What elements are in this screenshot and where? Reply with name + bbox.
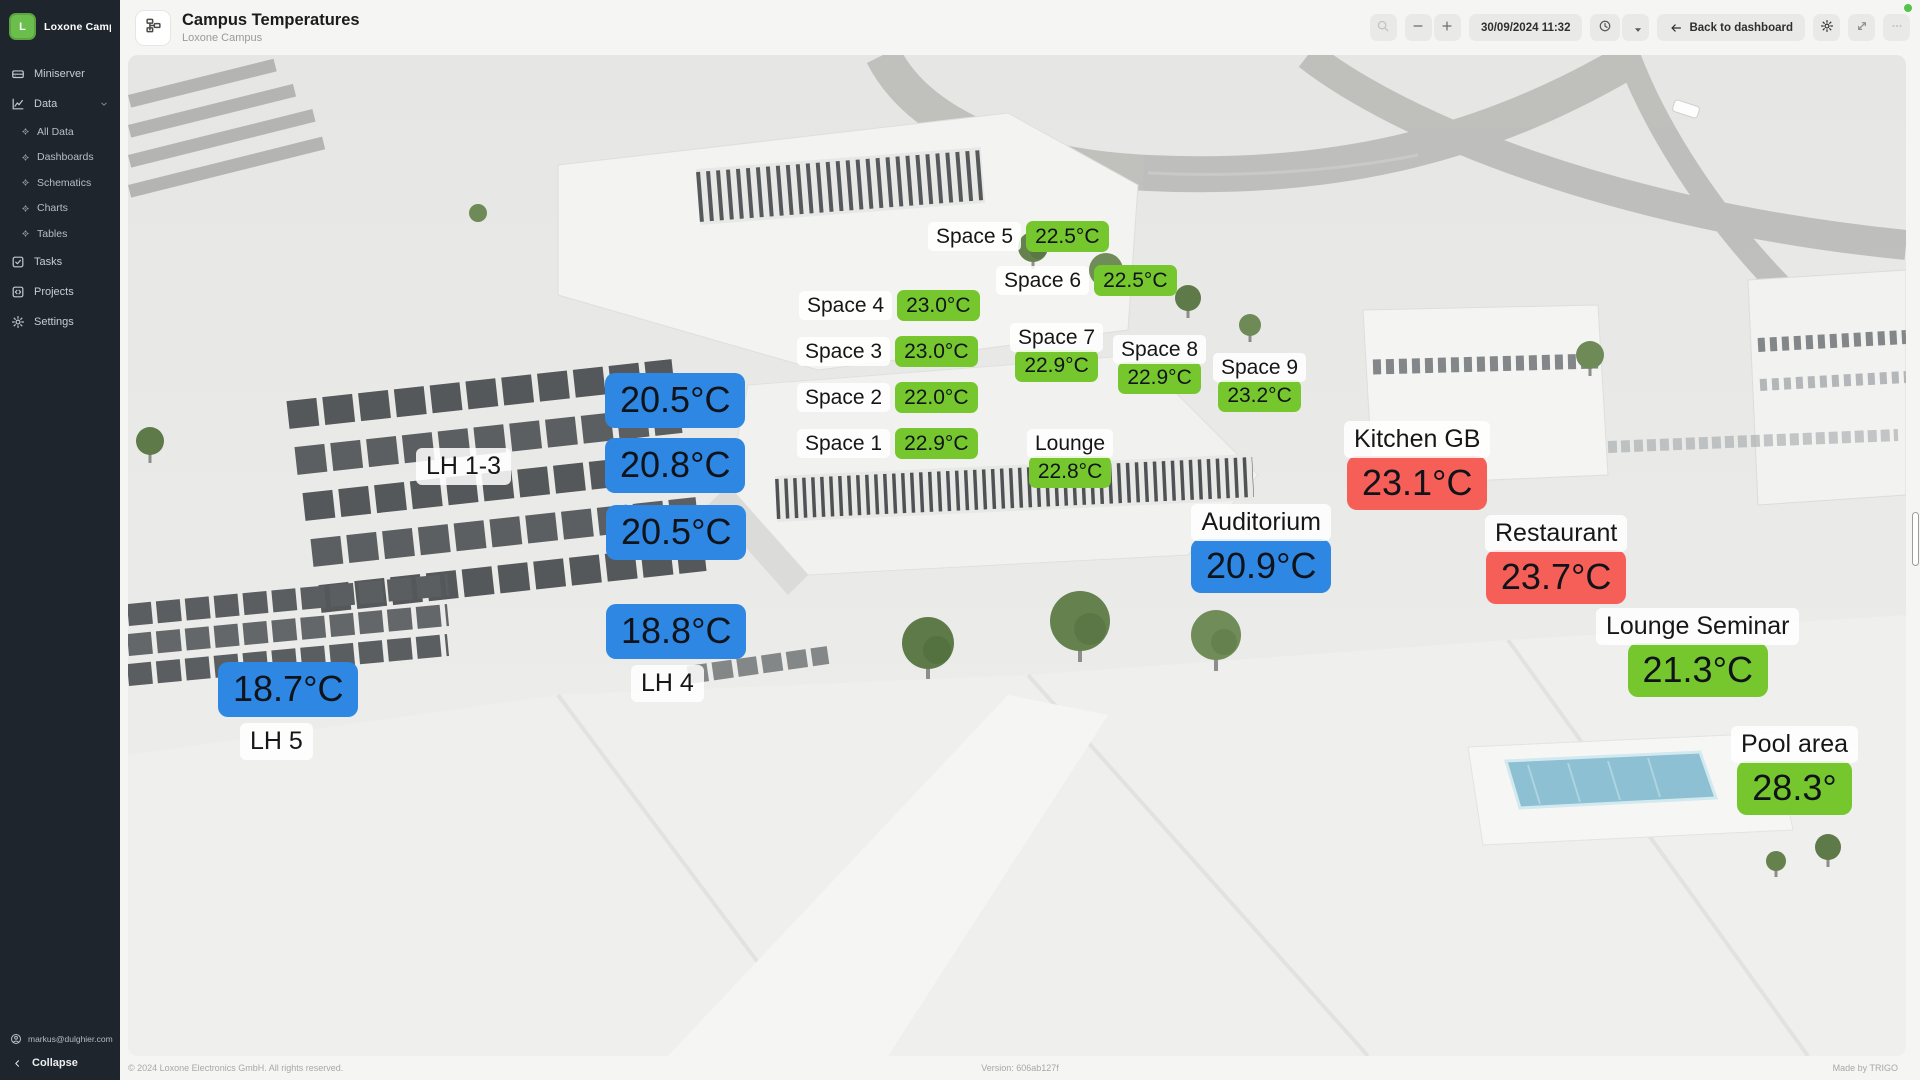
- time-range-dropdown[interactable]: [1622, 14, 1649, 41]
- marker-value: 20.5°C: [605, 373, 745, 428]
- marker-label: Space 8: [1113, 335, 1206, 364]
- scrollbar-thumb[interactable]: [1912, 512, 1919, 566]
- sidebar-item-schematics[interactable]: Schematics: [0, 170, 120, 196]
- marker-label: Lounge: [1027, 429, 1113, 458]
- marker-label: Pool area: [1731, 726, 1858, 763]
- bullet-gear-icon: [21, 229, 30, 238]
- back-arrow-icon: [1669, 21, 1682, 34]
- temp-marker-pool-area[interactable]: Pool area28.3°: [1731, 726, 1858, 815]
- sidebar-item-miniserver[interactable]: Miniserver: [0, 59, 120, 89]
- sidebar-item-data[interactable]: Data: [0, 89, 120, 119]
- fullscreen-button[interactable]: [1848, 14, 1875, 41]
- sidebar-subitem-label: Charts: [37, 202, 68, 214]
- data-icon: [11, 97, 25, 111]
- marker-label: Kitchen GB: [1344, 421, 1490, 458]
- bullet-gear-icon: [21, 204, 30, 213]
- campus-map[interactable]: Space 522.5°CSpace 622.5°CSpace 423.0°CS…: [128, 55, 1906, 1056]
- temp-marker-lh-4[interactable]: LH 4: [631, 665, 704, 702]
- time-history-button[interactable]: [1590, 14, 1620, 41]
- marker-label: LH 1-3: [416, 448, 511, 485]
- marker-value: 20.9°C: [1191, 539, 1331, 594]
- back-to-dashboard-button[interactable]: Back to dashboard: [1657, 14, 1805, 41]
- version-text: Version: 606ab127f: [981, 1063, 1059, 1073]
- workspace-name: Loxone Campus...: [44, 21, 111, 33]
- marker-label: Restaurant: [1485, 515, 1627, 552]
- sidebar-nav: MiniserverDataAll DataDashboardsSchemati…: [0, 59, 120, 337]
- marker-label: Space 1: [797, 429, 890, 458]
- workspace-switcher[interactable]: L Loxone Campus...: [0, 0, 120, 49]
- header: Campus Temperatures Loxone Campus 30/09/…: [120, 0, 1920, 55]
- sidebar-item-dashboards[interactable]: Dashboards: [0, 145, 120, 171]
- user-circle-icon: [10, 1033, 22, 1045]
- sidebar: L Loxone Campus... MiniserverDataAll Dat…: [0, 0, 120, 1080]
- collapse-sidebar-button[interactable]: Collapse: [0, 1050, 120, 1076]
- temp-marker-lh-1-3[interactable]: LH 1-3: [416, 448, 511, 485]
- sidebar-item-label: Tasks: [34, 256, 62, 268]
- settings-button[interactable]: [1813, 14, 1840, 41]
- caret-down-icon: [1631, 23, 1641, 33]
- page-title: Campus Temperatures: [182, 11, 360, 30]
- more-options-button[interactable]: [1883, 14, 1910, 41]
- marker-value: 20.5°C: [606, 505, 746, 560]
- chevron-down-icon: [99, 99, 109, 109]
- marker-label: Space 4: [799, 291, 892, 320]
- marker-label: LH 4: [631, 665, 704, 702]
- marker-label: Space 7: [1010, 323, 1103, 352]
- sidebar-item-settings[interactable]: Settings: [0, 307, 120, 337]
- projects-icon: [11, 285, 25, 299]
- bullet-gear-icon: [21, 127, 30, 136]
- miniserver-icon: [11, 67, 25, 81]
- plus-icon: [1440, 19, 1454, 36]
- marker-value: 22.5°C: [1026, 221, 1108, 252]
- toolbar: 30/09/2024 11:32 Back to dashboard: [1370, 14, 1910, 41]
- temp-marker-lounge[interactable]: Lounge22.8°C: [1027, 429, 1113, 488]
- marker-value: 23.7°C: [1486, 550, 1626, 605]
- temp-marker-restaurant[interactable]: Restaurant23.7°C: [1485, 515, 1627, 604]
- temp-marker-space-6[interactable]: Space 622.5°C: [996, 265, 1177, 296]
- sidebar-item-label: Settings: [34, 316, 74, 328]
- sidebar-subitem-label: Schematics: [37, 177, 91, 189]
- temp-marker-kitchen-gb[interactable]: Kitchen GB23.1°C: [1344, 421, 1490, 510]
- expand-icon: [1855, 19, 1869, 36]
- sidebar-item-label: Projects: [34, 286, 74, 298]
- temp-marker-space-3[interactable]: Space 323.0°C: [797, 336, 978, 367]
- sidebar-item-tables[interactable]: Tables: [0, 221, 120, 247]
- zoom-controls: [1405, 14, 1461, 41]
- temp-marker-20-5-c[interactable]: 20.5°C: [606, 505, 746, 560]
- sidebar-item-all-data[interactable]: All Data: [0, 119, 120, 145]
- sidebar-subitem-label: All Data: [37, 126, 74, 138]
- temp-marker-space-8[interactable]: Space 822.9°C: [1113, 335, 1206, 394]
- marker-label: Space 3: [797, 337, 890, 366]
- marker-label: Space 5: [928, 222, 1021, 251]
- status-dot: [1904, 4, 1912, 12]
- marker-value: 22.8°C: [1029, 456, 1111, 487]
- sidebar-subitem-label: Tables: [37, 228, 67, 240]
- temperature-markers: Space 522.5°CSpace 622.5°CSpace 423.0°CS…: [128, 55, 1906, 1056]
- sidebar-footer: markus@dulghier.com Collapse: [0, 1028, 120, 1076]
- datetime-value: 30/09/2024 11:32: [1481, 22, 1571, 34]
- temp-marker-18-7-c[interactable]: 18.7°C: [218, 662, 358, 717]
- datetime-button[interactable]: 30/09/2024 11:32: [1469, 14, 1583, 41]
- marker-value: 21.3°C: [1628, 643, 1768, 698]
- sidebar-item-charts[interactable]: Charts: [0, 196, 120, 222]
- bullet-gear-icon: [21, 153, 30, 162]
- temp-marker-space-1[interactable]: Space 122.9°C: [797, 428, 978, 459]
- sidebar-item-label: Miniserver: [34, 68, 85, 80]
- tasks-icon: [11, 255, 25, 269]
- zoom-search-button[interactable]: [1370, 14, 1397, 41]
- marker-value: 23.0°C: [897, 290, 979, 321]
- temp-marker-20-8-c[interactable]: 20.8°C: [605, 438, 745, 493]
- temp-marker-lh-5[interactable]: LH 5: [240, 723, 313, 760]
- more-dots-icon: [1890, 19, 1904, 36]
- search-icon: [1376, 19, 1390, 36]
- temp-marker-auditorium[interactable]: Auditorium20.9°C: [1191, 504, 1331, 593]
- marker-value: 18.8°C: [606, 604, 746, 659]
- schematic-icon: [135, 10, 171, 46]
- bullet-gear-icon: [21, 178, 30, 187]
- history-clock-icon: [1598, 19, 1612, 36]
- temp-marker-20-5-c[interactable]: 20.5°C: [605, 373, 745, 428]
- temp-marker-space-4[interactable]: Space 423.0°C: [799, 290, 980, 321]
- marker-label: Lounge Seminar: [1596, 608, 1799, 645]
- gear-icon: [1820, 19, 1834, 36]
- temp-marker-space-9[interactable]: Space 923.2°C: [1213, 353, 1306, 412]
- marker-value: 22.0°C: [895, 382, 977, 413]
- marker-value: 23.0°C: [895, 336, 977, 367]
- copyright-text: © 2024 Loxone Electronics GmbH. All righ…: [128, 1063, 343, 1073]
- minus-icon: [1411, 19, 1425, 36]
- marker-label: Space 9: [1213, 353, 1306, 382]
- marker-value: 22.9°C: [895, 428, 977, 459]
- page-subtitle: Loxone Campus: [182, 32, 360, 44]
- temp-marker-space-7[interactable]: Space 722.9°C: [1010, 323, 1103, 382]
- marker-label: Space 6: [996, 266, 1089, 295]
- temp-marker-space-5[interactable]: Space 522.5°C: [928, 221, 1109, 252]
- user-account[interactable]: markus@dulghier.com: [0, 1028, 120, 1050]
- marker-value: 28.3°: [1737, 761, 1851, 816]
- back-to-dashboard-label: Back to dashboard: [1689, 22, 1793, 34]
- marker-label: Auditorium: [1191, 504, 1331, 541]
- settings-icon: [11, 315, 25, 329]
- marker-value: 23.2°C: [1218, 380, 1300, 411]
- marker-label: LH 5: [240, 723, 313, 760]
- title-block: Campus Temperatures Loxone Campus: [182, 11, 360, 44]
- made-by-text: Made by TRIGO: [1833, 1063, 1898, 1073]
- marker-value: 18.7°C: [218, 662, 358, 717]
- history-controls: [1590, 14, 1649, 41]
- temp-marker-space-2[interactable]: Space 222.0°C: [797, 382, 978, 413]
- sidebar-item-tasks[interactable]: Tasks: [0, 247, 120, 277]
- sidebar-item-projects[interactable]: Projects: [0, 277, 120, 307]
- temp-marker-lounge-seminar[interactable]: Lounge Seminar21.3°C: [1596, 608, 1799, 697]
- sidebar-subitem-label: Dashboards: [37, 151, 94, 163]
- user-email: markus@dulghier.com: [28, 1034, 113, 1044]
- workspace-logo: L: [9, 13, 36, 40]
- marker-value: 20.8°C: [605, 438, 745, 493]
- marker-label: Space 2: [797, 383, 890, 412]
- marker-value: 22.9°C: [1015, 350, 1097, 381]
- page-footer: © 2024 Loxone Electronics GmbH. All righ…: [120, 1056, 1920, 1080]
- temp-marker-18-8-c[interactable]: 18.8°C: [606, 604, 746, 659]
- marker-value: 22.9°C: [1118, 362, 1200, 393]
- collapse-label: Collapse: [32, 1057, 78, 1069]
- sidebar-item-label: Data: [34, 98, 57, 110]
- marker-value: 22.5°C: [1094, 265, 1176, 296]
- zoom-out-button[interactable]: [1405, 14, 1432, 41]
- zoom-in-button[interactable]: [1434, 14, 1461, 41]
- chevron-left-icon: [12, 1058, 23, 1069]
- marker-value: 23.1°C: [1347, 456, 1487, 511]
